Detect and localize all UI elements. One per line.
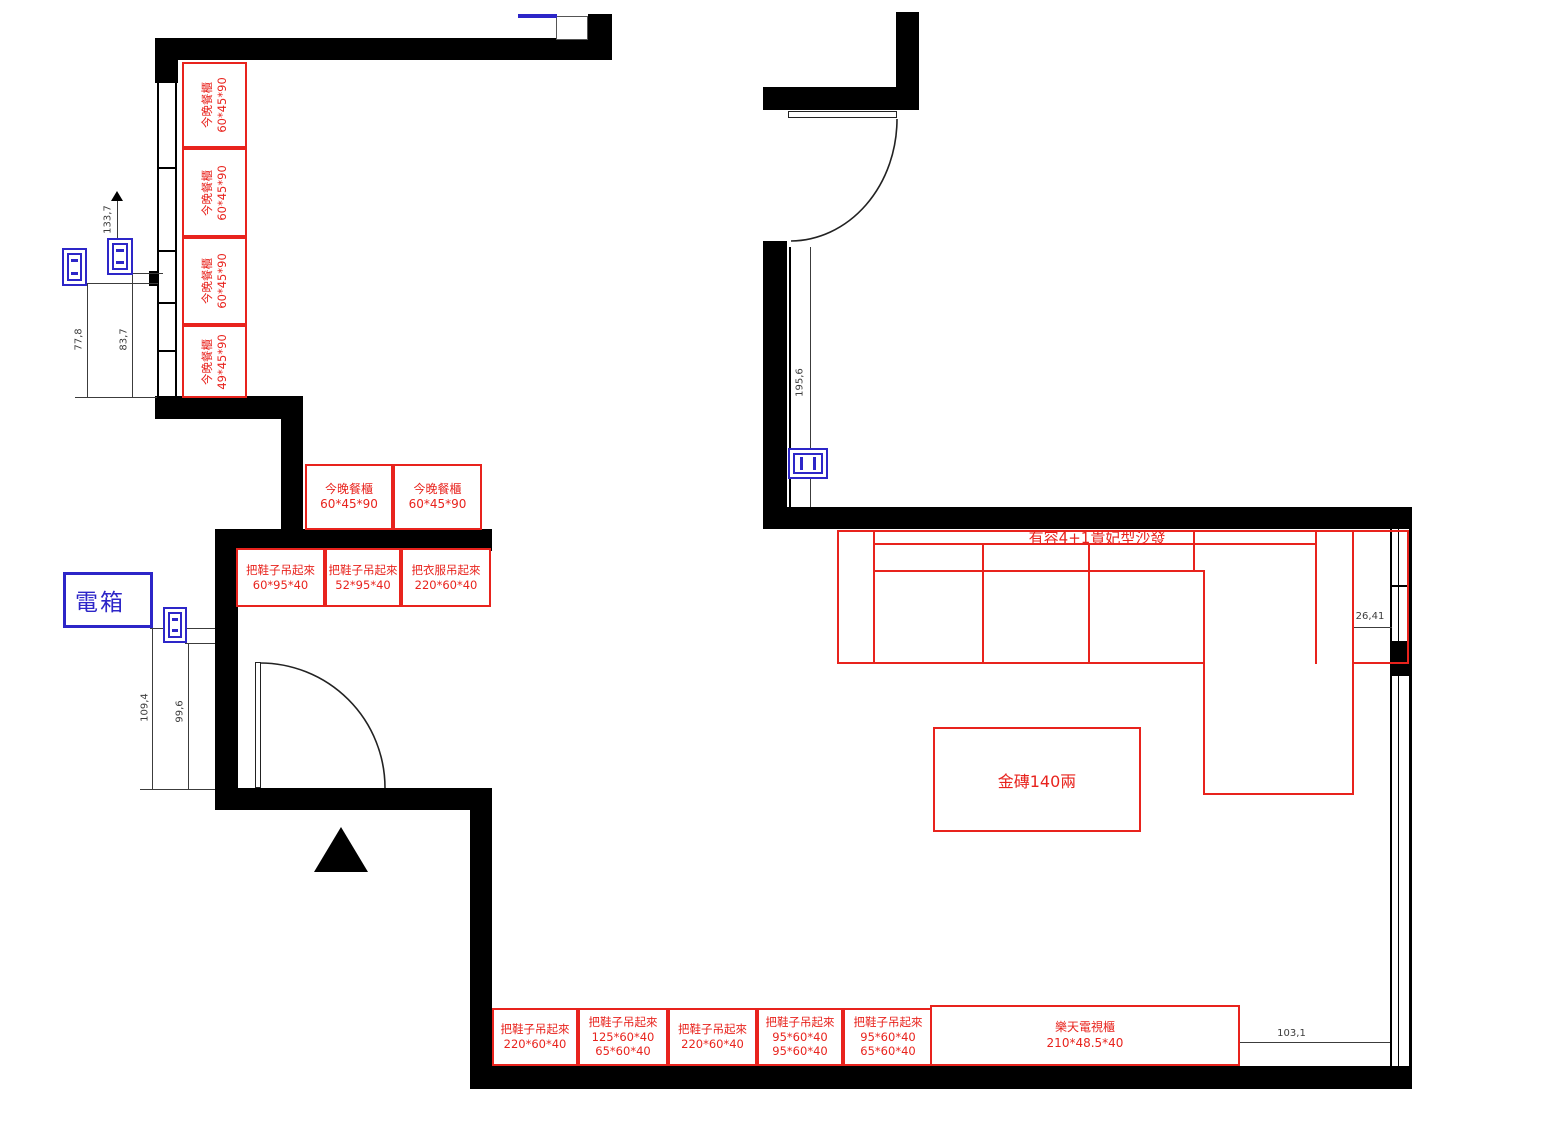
dim-label-133-7: 133,7 xyxy=(103,200,114,240)
outlet-icon xyxy=(163,607,187,643)
outlet-icon xyxy=(107,238,133,275)
sofa-line xyxy=(982,543,984,664)
tv-cabinet-box: 樂天電視櫃210*48.5*40 xyxy=(930,1005,1240,1066)
sofa-line xyxy=(873,530,875,664)
dim-label-99-6: 99,6 xyxy=(175,692,186,732)
sofa-line xyxy=(1315,530,1317,664)
sofa-line xyxy=(873,570,1205,572)
closet-box: 把鞋子吊起來52*95*40 xyxy=(325,548,401,607)
dim-label-195-6: 195,6 xyxy=(795,362,806,404)
window-line xyxy=(1390,529,1392,1066)
dim-line xyxy=(132,275,133,397)
wall xyxy=(763,241,787,529)
cabinet-box: 今晚餐櫃60*45*90 xyxy=(182,148,247,237)
dim-line xyxy=(188,643,189,789)
wall xyxy=(215,551,238,810)
shoe-cabinet-box: 把鞋子吊起來125*60*4065*60*40 xyxy=(578,1008,668,1066)
door-swing-arc xyxy=(790,118,898,242)
sofa-line xyxy=(1203,793,1354,795)
sofa-line xyxy=(1352,662,1409,664)
sofa-label: 有容4+1貴妃型沙發 xyxy=(1012,527,1182,548)
dim-label-26-41: 26,41 xyxy=(1349,611,1391,622)
wall xyxy=(470,1066,1412,1089)
window-tick xyxy=(157,250,177,252)
shoe-cabinet-box: 把鞋子吊起來95*60*4095*60*40 xyxy=(757,1008,843,1066)
sofa-line xyxy=(1088,543,1090,664)
dim-line xyxy=(117,200,118,240)
wall xyxy=(155,396,303,419)
wall xyxy=(763,507,1412,529)
shoe-cabinet-box: 把鞋子吊起來220*60*40 xyxy=(668,1008,757,1066)
sofa-line xyxy=(837,662,1205,664)
dim-line xyxy=(87,283,88,397)
floor-plan: 133,7 77,8 83,7 109,4 99,6 195,6 26,41 1… xyxy=(0,0,1566,1146)
shoe-cabinet-box: 把鞋子吊起來220*60*40 xyxy=(492,1008,578,1066)
dim-line xyxy=(1239,1042,1390,1043)
electrical-box-label: 電箱 xyxy=(75,583,125,617)
dim-ext-line xyxy=(185,643,215,644)
door-swing-arc xyxy=(259,662,387,790)
door-leaf xyxy=(788,111,897,118)
sofa-line xyxy=(837,530,839,664)
cabinet-box: 今晚餐櫃60*45*90 xyxy=(182,62,247,148)
shoe-cabinet-box: 把鞋子吊起來95*60*4065*60*40 xyxy=(843,1008,933,1066)
dim-ext-line xyxy=(140,789,215,790)
wall xyxy=(155,38,612,60)
sofa-line xyxy=(1203,570,1205,795)
dim-line xyxy=(152,628,153,789)
dim-label-103-1: 103,1 xyxy=(1269,1028,1314,1039)
window-tick xyxy=(157,350,177,352)
dim-line xyxy=(1352,627,1392,628)
wall xyxy=(588,14,612,40)
sofa-line xyxy=(1352,530,1354,795)
closet-box: 把衣服吊起來220*60*40 xyxy=(401,548,491,607)
dim-label-109-4: 109,4 xyxy=(140,688,151,728)
dim-ext-line xyxy=(75,397,157,398)
window-tick xyxy=(157,167,177,169)
dim-ext-line xyxy=(130,273,163,274)
cabinet-box: 今晚餐櫃60*45*90 xyxy=(182,237,247,325)
dim-label-83-7: 83,7 xyxy=(119,320,130,360)
entrance-arrow-icon xyxy=(314,827,368,872)
cabinet-box: 今晚餐櫃49*45*90 xyxy=(182,325,247,398)
dim-ext-line xyxy=(87,283,158,284)
window-line xyxy=(1409,529,1412,1066)
wall xyxy=(155,38,178,83)
closet-box: 把鞋子吊起來60*95*40 xyxy=(236,548,325,607)
cabinet-box: 今晚餐櫃60*45*90 xyxy=(305,464,393,530)
cabinet-box: 今晚餐櫃60*45*90 xyxy=(393,464,482,530)
wall xyxy=(763,87,919,110)
wall xyxy=(215,788,492,810)
wall xyxy=(281,419,303,530)
gold-brick-box: 金磚140兩 xyxy=(933,727,1141,832)
sofa-line xyxy=(1193,530,1195,572)
dim-label-77-8: 77,8 xyxy=(74,320,85,360)
sofa-line xyxy=(1407,530,1409,664)
blue-wall-marker xyxy=(518,14,557,18)
wall xyxy=(470,810,492,1089)
outlet-icon xyxy=(62,248,87,286)
window-line xyxy=(1398,529,1399,1066)
outlet-icon xyxy=(788,448,828,479)
window-tick xyxy=(157,302,177,304)
electrical-box: 電箱 xyxy=(63,572,153,628)
wall-niche-box xyxy=(556,16,588,40)
